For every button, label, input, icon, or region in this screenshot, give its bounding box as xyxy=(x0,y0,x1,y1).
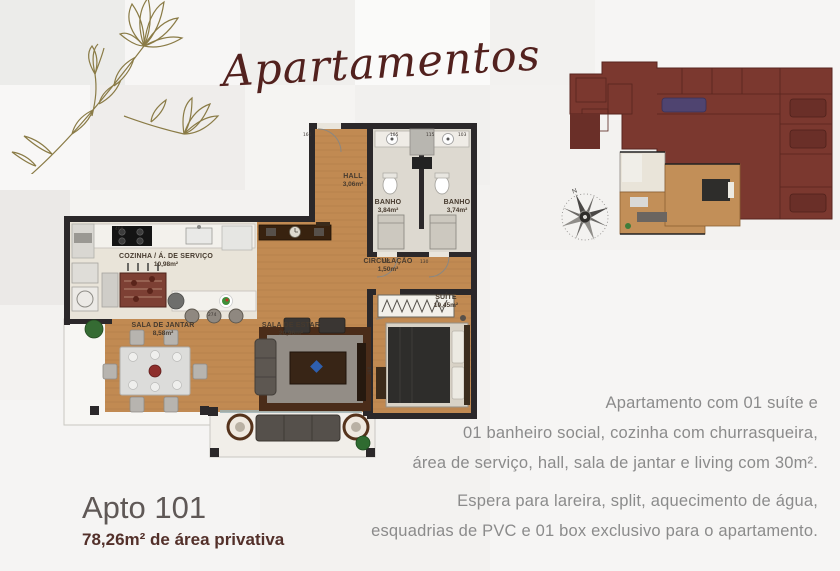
entry-console xyxy=(259,225,331,240)
room-label-hall: HALL 3,06m² xyxy=(318,172,388,190)
description-paragraph-2: Espera para lareira, split, aquecimento … xyxy=(371,486,818,546)
dimension-label: 105 xyxy=(390,132,399,138)
dimension-label: 160 xyxy=(303,132,312,138)
marketing-page: Apartamentos xyxy=(0,0,840,571)
room-label-estar: SALA DE ESTAR 20,96m² xyxy=(241,321,341,339)
compass-rose: N xyxy=(556,186,614,246)
description-line: Apartamento com 01 suíte e xyxy=(412,388,818,418)
room-label-cozinha: COZINHA / Á. DE SERVIÇO 10,98m² xyxy=(96,252,236,270)
description-line: área de serviço, hall, sala de jantar e … xyxy=(412,448,818,478)
description-line: esquadrias de PVC e 01 box exclusivo par… xyxy=(371,516,818,546)
hall-cabinet xyxy=(316,222,330,226)
description-line: 01 banheiro social, cozinha com churrasq… xyxy=(412,418,818,448)
compass-north-label: N xyxy=(571,187,578,195)
room-label-suite: SUÍTE 10,45m² xyxy=(411,293,481,311)
highlighted-unit xyxy=(620,152,740,234)
room-label-jantar: SALA DE JANTAR 8,58m² xyxy=(113,321,213,339)
room-label-banho-2: BANHO 3,74m² xyxy=(422,198,492,216)
description-line: Espera para lareira, split, aquecimento … xyxy=(371,486,818,516)
room-label-circulacao: CIRCULAÇÃO 1,50m² xyxy=(348,257,428,275)
unit-name: Apto 101 xyxy=(82,490,206,526)
dimension-label: 115 xyxy=(426,132,435,138)
dimension-label: 274 xyxy=(208,312,217,318)
dimension-label: 280 xyxy=(367,366,373,375)
dimension-label: 103 xyxy=(458,132,467,138)
room-label-banho-1: BANHO 3,84m² xyxy=(353,198,423,216)
unit-private-area: 78,26m² de área privativa xyxy=(82,530,284,550)
description-paragraph-1: Apartamento com 01 suíte e 01 banheiro s… xyxy=(412,388,818,478)
dimension-label: 400 xyxy=(115,226,124,232)
